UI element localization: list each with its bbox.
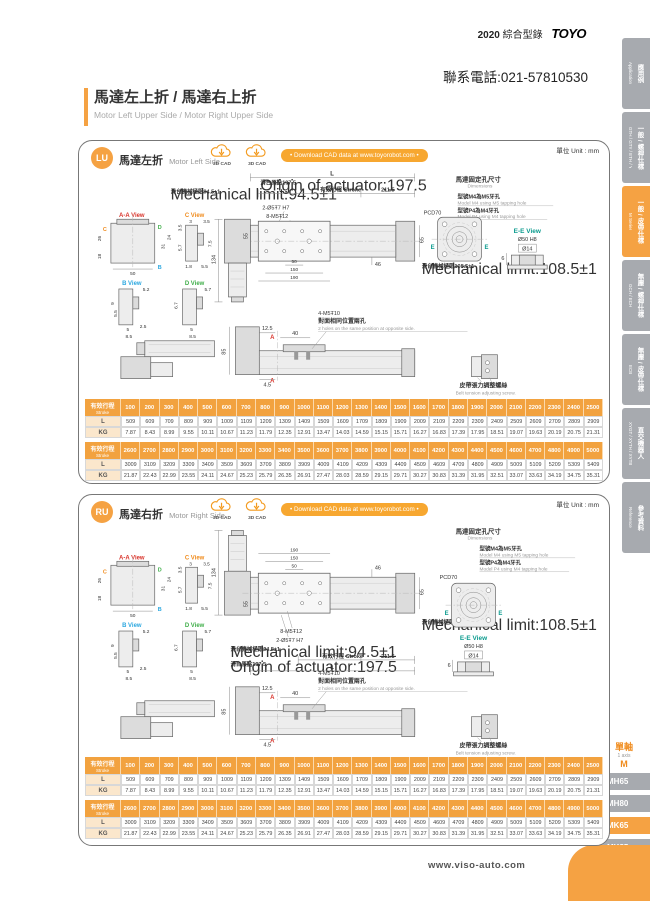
unit-label: 單位 Unit : mm — [556, 145, 599, 155]
stroke-value-cell: 1100 — [314, 399, 333, 416]
svg-text:8.5: 8.5 — [126, 676, 133, 682]
svg-text:8-M5Ŧ12: 8-M5Ŧ12 — [280, 629, 302, 635]
sidebar-tab[interactable]: GCH / ECH無塵 / 螺桿仕樣 — [622, 260, 650, 331]
data-cell: 24.67 — [217, 470, 236, 481]
data-cell: 609 — [140, 416, 159, 427]
data-cell: 13.47 — [314, 785, 333, 796]
data-cell: 909 — [198, 416, 217, 427]
data-cell: 3009 — [121, 459, 140, 470]
data-cell: 5409 — [584, 817, 603, 828]
stroke-value-cell: 1100 — [314, 757, 333, 774]
data-cell: 3809 — [275, 817, 294, 828]
stroke-value-cell: 2000 — [487, 757, 506, 774]
data-cell: 11.79 — [256, 427, 275, 438]
data-cell: 19.63 — [526, 427, 545, 438]
cad-2d-download[interactable]: 2D CAD — [207, 144, 237, 167]
data-cell: 1609 — [333, 774, 352, 785]
download-cad-link[interactable]: • Download CAD data at www.toyorobot.com… — [281, 503, 428, 516]
stroke-value-cell: 4900 — [564, 442, 583, 459]
svg-text:A-A View: A-A View — [119, 555, 145, 561]
sidebar-tab-label: 一般 / 皮帶仕樣 — [634, 199, 644, 243]
data-cell: 5009 — [507, 459, 526, 470]
data-cell: 27.47 — [314, 470, 333, 481]
sidebar-tab[interactable]: XYGT / XYTH / XYTB直交機器人 — [622, 408, 650, 479]
data-cell: 34.75 — [564, 470, 583, 481]
data-cell: 15.15 — [372, 785, 391, 796]
data-cell: 10.11 — [198, 427, 217, 438]
svg-text:55: 55 — [243, 233, 249, 239]
stroke-value-cell: 500 — [198, 757, 217, 774]
stroke-value-cell: 2600 — [121, 800, 140, 817]
stroke-value-cell: 900 — [275, 757, 294, 774]
data-cell: 2509 — [507, 416, 526, 427]
svg-text:3.5: 3.5 — [203, 219, 210, 225]
stroke-table-group: 有效行程Stroke100200300400500600700800900100… — [85, 757, 603, 796]
sidebar-tab-sublabel: ECB — [628, 365, 633, 374]
data-cell: 4609 — [429, 817, 448, 828]
stroke-table-ru: 有效行程Stroke100200300400500600700800900100… — [85, 757, 603, 843]
svg-text:6.7: 6.7 — [174, 644, 180, 651]
data-cell: 2009 — [410, 774, 429, 785]
svg-text:Mechanical limit:108.5±1: Mechanical limit:108.5±1 — [422, 261, 597, 278]
panel-motor-right: RU 馬達右折 Motor Right Side 2D CAD 3D CAD •… — [78, 494, 610, 846]
data-cell: 34.75 — [564, 828, 583, 839]
data-cell: 2809 — [564, 774, 583, 785]
svg-text:4-M5Ŧ10: 4-M5Ŧ10 — [318, 311, 340, 317]
svg-text:1.8: 1.8 — [185, 606, 192, 612]
motor-mount-detail: 馬達固定孔尺寸 Dimensions 型號M4為M5牙孔 Model M4 us… — [440, 526, 575, 627]
data-cell: 3609 — [237, 459, 256, 470]
stroke-value-cell: 3400 — [275, 442, 294, 459]
data-cell: 27.47 — [314, 828, 333, 839]
data-cell: 10.67 — [217, 785, 236, 796]
data-cell: 31.95 — [468, 828, 487, 839]
stroke-value-cell: 1700 — [429, 757, 448, 774]
data-cell: 11.23 — [237, 427, 256, 438]
stroke-value-cell: 2000 — [487, 399, 506, 416]
data-cell: 11.23 — [237, 785, 256, 796]
data-cell: 5309 — [564, 817, 583, 828]
svg-text:150: 150 — [290, 267, 298, 273]
sidebar-tab[interactable]: GTH / GTY / ETH / Y一般 / 螺桿仕樣 — [622, 112, 650, 183]
cad-3d-download[interactable]: 3D CAD — [242, 144, 272, 167]
svg-text:5.5: 5.5 — [113, 652, 119, 659]
stroke-value-cell: 3100 — [217, 800, 236, 817]
stroke-value-cell: 800 — [256, 399, 275, 416]
data-cell: 33.07 — [507, 470, 526, 481]
stroke-value-cell: 2500 — [584, 757, 603, 774]
data-cell: 28.59 — [352, 828, 371, 839]
svg-text:50: 50 — [130, 271, 136, 277]
stroke-value-cell: 1000 — [295, 757, 314, 774]
data-cell: 3509 — [217, 817, 236, 828]
stroke-value-cell: 4500 — [487, 442, 506, 459]
svg-text:18: 18 — [97, 595, 103, 601]
data-cell: 18.51 — [487, 785, 506, 796]
stroke-value-cell: 4300 — [449, 800, 468, 817]
svg-text:46: 46 — [375, 262, 381, 268]
stroke-value-cell: 600 — [217, 399, 236, 416]
svg-text:5.7: 5.7 — [178, 244, 184, 251]
stroke-value-cell: 2900 — [179, 800, 198, 817]
data-cell: 28.03 — [333, 470, 352, 481]
stroke-value-cell: 3700 — [333, 442, 352, 459]
sidebar-tab-label: 應用例 — [634, 64, 644, 84]
svg-text:150: 150 — [290, 555, 298, 561]
svg-text:18: 18 — [97, 253, 103, 259]
svg-text:134: 134 — [211, 568, 217, 577]
data-cell: 2709 — [545, 774, 564, 785]
page-subtitle: Motor Left Upper Side / Motor Right Uppe… — [94, 110, 273, 120]
data-cell: 4009 — [314, 459, 333, 470]
svg-text:D: D — [158, 567, 162, 573]
stroke-value-cell: 3900 — [372, 800, 391, 817]
data-cell: 4509 — [410, 459, 429, 470]
stroke-value-cell: 300 — [160, 757, 179, 774]
stroke-value-cell: 4700 — [526, 800, 545, 817]
stroke-value-cell: 4800 — [545, 800, 564, 817]
data-cell: 4909 — [487, 817, 506, 828]
svg-text:C View: C View — [185, 213, 205, 219]
data-cell: 15.71 — [391, 427, 410, 438]
svg-text:馬達固定孔尺寸: 馬達固定孔尺寸 — [456, 174, 502, 183]
data-cell: 10.11 — [198, 785, 217, 796]
svg-text:對面相同位置兩孔: 對面相同位置兩孔 — [318, 677, 366, 685]
svg-text:型號M4為M5牙孔: 型號M4為M5牙孔 — [479, 544, 522, 552]
svg-text:24: 24 — [167, 577, 173, 583]
svg-text:26: 26 — [97, 236, 103, 242]
data-cell: 1209 — [256, 774, 275, 785]
data-cell: 5109 — [526, 817, 545, 828]
sidebar-tab-label: 無塵 / 皮帶仕樣 — [634, 347, 644, 391]
sidebar-tab[interactable]: ECB無塵 / 皮帶仕樣 — [622, 334, 650, 405]
data-cell: 32.51 — [487, 828, 506, 839]
stroke-value-cell: 700 — [237, 399, 256, 416]
stroke-value-cell: 1800 — [449, 399, 468, 416]
stroke-table-lu: 有效行程Stroke100200300400500600700800900100… — [85, 399, 603, 485]
data-cell: 14.03 — [333, 785, 352, 796]
svg-text:8.5: 8.5 — [126, 334, 133, 340]
stroke-value-cell: 4700 — [526, 442, 545, 459]
data-cell: 509 — [121, 416, 140, 427]
data-cell: 4409 — [391, 817, 410, 828]
brand-logo: TOYO — [551, 26, 586, 41]
svg-text:C: C — [103, 569, 107, 575]
sidebar-tab-label: 參考資料 — [634, 505, 644, 531]
catalog-page: 2020 綜合型錄 TOYO 聯系電話:021-57810530 馬達左上折 /… — [0, 0, 650, 901]
data-cell: 1809 — [372, 416, 391, 427]
panel-lu-title: 馬達左折 Motor Left Side — [119, 152, 220, 168]
data-cell: 3909 — [295, 817, 314, 828]
stroke-value-cell: 1300 — [352, 399, 371, 416]
stroke-value-cell: 3200 — [237, 442, 256, 459]
stroke-value-cell: 1300 — [352, 757, 371, 774]
data-cell: 7.87 — [121, 427, 140, 438]
data-cell: 1109 — [237, 774, 256, 785]
stroke-value-cell: 700 — [237, 757, 256, 774]
svg-text:3: 3 — [189, 219, 192, 225]
data-cell: 23.55 — [179, 828, 198, 839]
data-cell: 12.91 — [295, 785, 314, 796]
svg-text:24: 24 — [167, 235, 173, 241]
stroke-value-cell: 3400 — [275, 800, 294, 817]
svg-text:50: 50 — [292, 563, 298, 569]
data-cell: 1309 — [275, 416, 294, 427]
title-accent-bar — [84, 88, 88, 126]
data-cell: 9.55 — [179, 785, 198, 796]
data-cell: 2009 — [410, 416, 429, 427]
svg-text:A: A — [270, 695, 275, 701]
svg-text:有效行程Stroke: 有效行程Stroke — [320, 185, 361, 193]
svg-text:6: 6 — [501, 256, 504, 262]
stroke-value-cell: 2200 — [526, 757, 545, 774]
svg-text:8.5: 8.5 — [189, 334, 196, 340]
stroke-value-cell: 1800 — [449, 757, 468, 774]
svg-text:Model M4 using M5 tapping hole: Model M4 using M5 tapping hole — [458, 200, 527, 206]
stroke-value-cell: 200 — [140, 757, 159, 774]
unit-label: 單位 Unit : mm — [556, 499, 599, 509]
svg-text:Dimensions: Dimensions — [468, 535, 494, 541]
data-cell: 2609 — [526, 416, 545, 427]
panel-lu-title-zh: 馬達左折 — [119, 155, 163, 167]
data-cell: 809 — [179, 416, 198, 427]
stroke-value-cell: 4100 — [410, 800, 429, 817]
svg-text:12.5: 12.5 — [262, 326, 273, 332]
data-cell: 4209 — [352, 459, 371, 470]
stroke-value-cell: 4300 — [449, 442, 468, 459]
svg-text:85: 85 — [221, 349, 227, 355]
cad-2d-download[interactable]: 2D CAD — [207, 498, 237, 521]
data-cell: 16.27 — [410, 785, 429, 796]
stroke-value-cell: 3100 — [217, 442, 236, 459]
sidebar-tab[interactable]: Application應用例 — [622, 38, 650, 109]
svg-text:B View: B View — [122, 281, 142, 287]
stroke-value-cell: 2900 — [179, 442, 198, 459]
data-cell: 20.19 — [545, 785, 564, 796]
stroke-value-cell: 4400 — [468, 442, 487, 459]
stroke-value-cell: 3000 — [198, 442, 217, 459]
data-cell: 5409 — [584, 459, 603, 470]
data-cell: 14.59 — [352, 785, 371, 796]
data-cell: 3709 — [256, 817, 275, 828]
data-cell: 14.03 — [333, 427, 352, 438]
data-cell: 30.27 — [410, 828, 429, 839]
svg-text:31: 31 — [161, 243, 167, 249]
sidebar-tab-label: 直交機器人 — [634, 427, 644, 460]
data-cell: 26.91 — [295, 828, 314, 839]
download-cad-link[interactable]: • Download CAD data at www.toyorobot.com… — [281, 149, 428, 162]
data-cell: 1909 — [391, 774, 410, 785]
data-cell: 2909 — [584, 416, 603, 427]
footer-url[interactable]: www.viso-auto.com — [428, 860, 525, 871]
detail-views: A-A View C D B 26 18 50 31 24 C View 3 3… — [97, 213, 214, 340]
svg-text:Belt tension adjusting screw.: Belt tension adjusting screw. — [456, 751, 516, 757]
svg-text:D View: D View — [185, 281, 205, 287]
stroke-value-cell: 1600 — [410, 399, 429, 416]
stroke-value-cell: 2700 — [140, 800, 159, 817]
row-label-cell: KG — [85, 427, 121, 438]
svg-text:E-E View: E-E View — [460, 635, 488, 642]
stroke-value-cell: 400 — [179, 399, 198, 416]
data-cell: 31.39 — [449, 470, 468, 481]
sidebar-tab[interactable]: Reference參考資料 — [622, 482, 650, 553]
data-cell: 4809 — [468, 459, 487, 470]
data-cell: 25.79 — [256, 470, 275, 481]
stroke-value-cell: 4800 — [545, 442, 564, 459]
stroke-value-cell: 5000 — [584, 442, 603, 459]
data-cell: 2509 — [507, 774, 526, 785]
sidebar-tab-sublabel: XYGT / XYTH / XYTB — [628, 422, 633, 465]
belt-tension-note: 皮帶張力調整螺絲 Belt tension adjusting screw. — [456, 355, 516, 397]
data-cell: 22.43 — [140, 828, 159, 839]
svg-text:3: 3 — [189, 561, 192, 567]
svg-text:2 holes on the same position a: 2 holes on the same position at opposite… — [318, 326, 415, 332]
data-cell: 19.07 — [507, 785, 526, 796]
data-cell: 709 — [160, 416, 179, 427]
svg-text:A-A View: A-A View — [119, 213, 145, 219]
svg-text:211.5: 211.5 — [381, 187, 394, 193]
svg-text:型號P4為M4牙孔: 型號P4為M4牙孔 — [458, 206, 500, 214]
row-label-cell: L — [85, 459, 121, 470]
data-cell: 4109 — [333, 459, 352, 470]
stroke-value-cell: 2700 — [140, 442, 159, 459]
data-cell: 5109 — [526, 459, 545, 470]
data-cell: 4609 — [429, 459, 448, 470]
data-cell: 24.11 — [198, 828, 217, 839]
stroke-value-cell: 3500 — [295, 800, 314, 817]
data-cell: 33.63 — [526, 828, 545, 839]
stroke-value-cell: 400 — [179, 757, 198, 774]
svg-text:B: B — [158, 265, 162, 271]
data-cell: 35.31 — [584, 470, 603, 481]
data-cell: 34.19 — [545, 828, 564, 839]
svg-text:4-M5Ŧ10: 4-M5Ŧ10 — [318, 671, 340, 677]
svg-text:9: 9 — [110, 302, 116, 305]
svg-text:馬達固定孔尺寸: 馬達固定孔尺寸 — [456, 526, 502, 535]
svg-text:5: 5 — [190, 327, 193, 333]
data-cell: 809 — [179, 774, 198, 785]
technical-drawing-motor-left: A-A View C D B 26 18 50 31 24 C View 3 3… — [85, 167, 603, 399]
data-cell: 1409 — [295, 416, 314, 427]
data-cell: 4109 — [333, 817, 352, 828]
svg-text:Mechanical limit:108.5±1: Mechanical limit:108.5±1 — [422, 617, 597, 634]
data-cell: 609 — [140, 774, 159, 785]
stroke-value-cell: 2200 — [526, 399, 545, 416]
svg-text:D: D — [158, 225, 162, 231]
data-cell: 4509 — [410, 817, 429, 828]
stroke-value-cell: 500 — [198, 399, 217, 416]
data-cell: 16.83 — [429, 427, 448, 438]
data-cell: 1609 — [333, 416, 352, 427]
svg-text:C View: C View — [185, 555, 205, 561]
data-cell: 1309 — [275, 774, 294, 785]
data-cell: 2309 — [468, 774, 487, 785]
svg-text:31: 31 — [161, 586, 167, 592]
svg-text:Model P4 using M4 tapping hole: Model P4 using M4 tapping hole — [479, 566, 547, 572]
side-view: A A 12.5 40 85 4.5 4-M5Ŧ10 對面相同位置兩孔 2 ho… — [121, 311, 468, 389]
svg-text:E: E — [484, 245, 488, 251]
svg-text:5: 5 — [127, 669, 130, 675]
stroke-value-cell: 1200 — [333, 757, 352, 774]
stroke-value-cell: 1700 — [429, 399, 448, 416]
svg-text:5.5: 5.5 — [113, 310, 119, 317]
stroke-value-cell: 1900 — [468, 757, 487, 774]
data-cell: 3909 — [295, 459, 314, 470]
catalog-title: 綜合型錄 — [503, 30, 543, 41]
stroke-value-cell: 2400 — [564, 399, 583, 416]
svg-text:2 holes on the same position a: 2 holes on the same position at opposite… — [318, 686, 415, 692]
row-label-cell: KG — [85, 785, 121, 796]
stroke-table-group: 有效行程Stroke260027002800290030003100320033… — [85, 800, 603, 839]
data-cell: 2109 — [429, 416, 448, 427]
data-cell: 29.15 — [372, 470, 391, 481]
data-cell: 1109 — [237, 416, 256, 427]
data-cell: 32.51 — [487, 470, 506, 481]
stroke-value-cell: 2500 — [584, 399, 603, 416]
stroke-value-cell: 200 — [140, 399, 159, 416]
data-cell: 30.27 — [410, 470, 429, 481]
svg-text:26: 26 — [97, 578, 103, 584]
svg-text:PCD70: PCD70 — [440, 575, 458, 581]
stroke-value-cell: 100 — [121, 757, 140, 774]
data-cell: 3309 — [179, 817, 198, 828]
data-cell: 22.43 — [140, 470, 159, 481]
data-cell: 709 — [160, 774, 179, 785]
stroke-value-cell: 900 — [275, 399, 294, 416]
stroke-value-cell: 3200 — [237, 800, 256, 817]
data-cell: 33.63 — [526, 470, 545, 481]
sidebar-tab[interactable]: M Series一般 / 皮帶仕樣 — [622, 186, 650, 257]
data-cell: 7.87 — [121, 785, 140, 796]
data-cell: 21.87 — [121, 470, 140, 481]
data-cell: 26.35 — [275, 828, 294, 839]
svg-text:5.7: 5.7 — [205, 287, 212, 293]
svg-text:Ø14: Ø14 — [522, 247, 532, 253]
svg-text:B View: B View — [122, 623, 142, 629]
data-cell: 3509 — [217, 459, 236, 470]
data-cell: 29.71 — [391, 470, 410, 481]
data-cell: 11.79 — [256, 785, 275, 796]
catalog-header: 2020 綜合型錄 TOYO — [478, 26, 586, 41]
row-label-cell: L — [85, 774, 121, 785]
data-cell: 20.75 — [564, 427, 583, 438]
row-label-cell: L — [85, 416, 121, 427]
data-cell: 1409 — [295, 774, 314, 785]
data-cell: 29.15 — [372, 828, 391, 839]
stroke-value-cell: 5000 — [584, 800, 603, 817]
data-cell: 19.63 — [526, 785, 545, 796]
svg-text:190: 190 — [290, 547, 298, 553]
stroke-value-cell: 1400 — [372, 399, 391, 416]
data-cell: 9.55 — [179, 427, 198, 438]
data-cell: 8.43 — [140, 427, 159, 438]
svg-text:2-Ø5Ŧ7 H7: 2-Ø5Ŧ7 H7 — [262, 205, 289, 211]
stroke-value-cell: 3800 — [352, 442, 371, 459]
sidebar-tab-label: 一般 / 螺桿仕樣 — [634, 125, 644, 169]
stroke-value-cell: 1500 — [391, 399, 410, 416]
stroke-value-cell: 800 — [256, 757, 275, 774]
stroke-value-cell: 2400 — [564, 757, 583, 774]
data-cell: 2209 — [449, 774, 468, 785]
cad-3d-download[interactable]: 3D CAD — [242, 498, 272, 521]
svg-text:8-M5Ŧ12: 8-M5Ŧ12 — [266, 214, 288, 220]
data-cell: 33.07 — [507, 828, 526, 839]
stroke-value-cell: 4900 — [564, 800, 583, 817]
svg-text:65: 65 — [420, 237, 426, 243]
data-cell: 8.43 — [140, 785, 159, 796]
stroke-value-cell: 3900 — [372, 442, 391, 459]
ee-section-view: E-E View Ø50 H8 Ø14 6 — [448, 635, 494, 676]
